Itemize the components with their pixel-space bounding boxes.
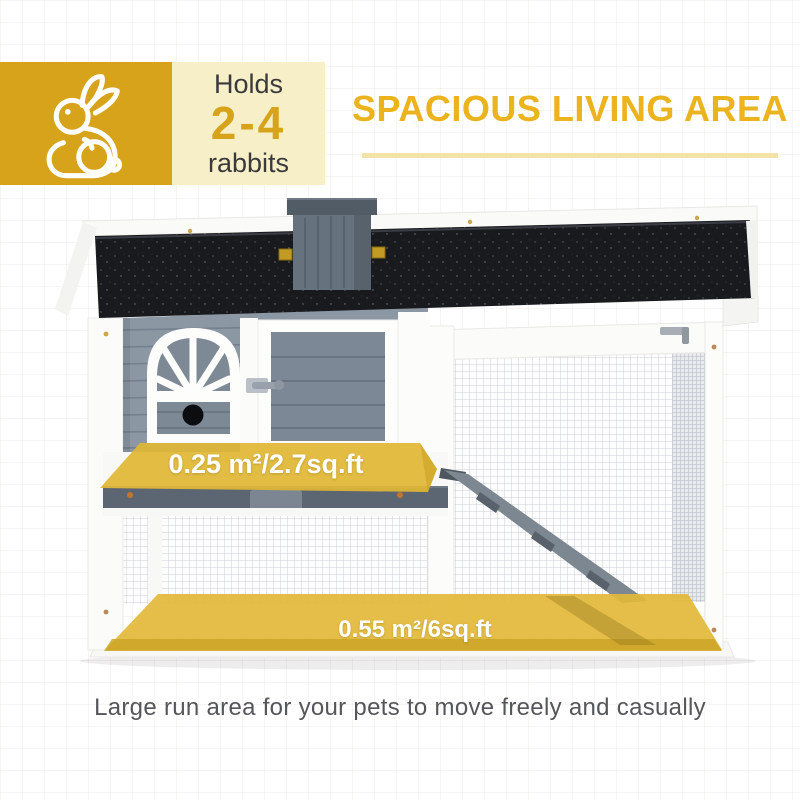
nest-box-chimney [279,198,385,290]
caption-text: Large run area for your pets to move fre… [0,694,800,722]
tray-handle [250,490,302,511]
roof-barge-board [55,222,97,316]
rabbit-hutch-illustration [0,0,800,800]
hutch-door [246,320,398,452]
mesh-stud [148,512,162,604]
hutch-area-label: 0.25 m²/2.7sq.ft [141,449,391,480]
right-corner-post [705,322,723,649]
product-infographic: Holds 2-4 rabbits SPACIOUS LIVING AREA [0,0,800,800]
window-hole [183,405,204,426]
chimney-bracket-right [372,247,385,258]
roof [55,206,758,318]
chimney-bracket-left [279,249,292,260]
arched-window [147,328,240,443]
run-area-label: 0.55 m²/6sq.ft [290,616,540,644]
